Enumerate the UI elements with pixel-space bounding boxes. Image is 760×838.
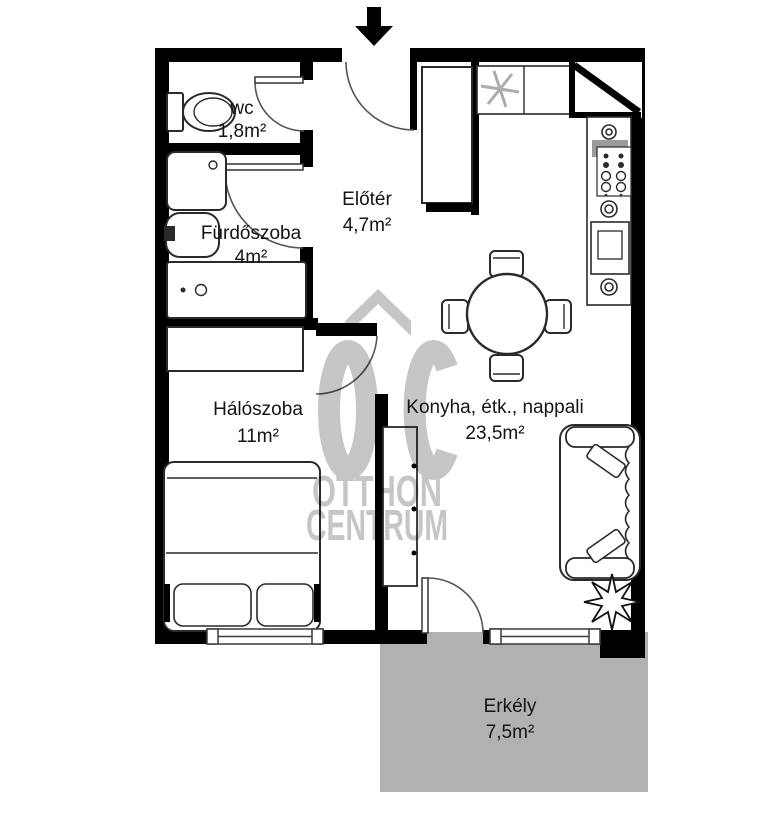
shaft-icon [569, 62, 642, 118]
wall-bottom-living-left [375, 630, 427, 644]
kitchen-top-counter [477, 66, 570, 114]
sofa-armrest [566, 558, 634, 578]
pillow [257, 584, 313, 626]
chair [490, 355, 523, 381]
living-window [490, 629, 600, 644]
room-area-bathroom: 4m² [235, 247, 268, 268]
sofa-armrest [566, 427, 634, 447]
table-top [467, 274, 547, 354]
washbasin-faucet [165, 227, 174, 240]
room-name-wc: wc [229, 98, 253, 119]
balcony-door-leaf [422, 578, 428, 633]
watermark-line2: CENTRUM [306, 501, 448, 550]
floor-plan-canvas: wc 1,8m² Fürdőszoba 4m² Előtér 4,7m² Hál… [0, 0, 760, 838]
room-name-hall: Előtér [342, 189, 392, 210]
room-name-living: Konyha, étk., nappali [406, 397, 583, 418]
room-area-hall: 4,7m² [343, 215, 392, 236]
shower-icon [167, 152, 226, 210]
room-name-balcony: Erkély [484, 696, 537, 717]
sofa-icon [560, 425, 640, 580]
kitchen-counter-icon [587, 117, 631, 305]
bedroom-window [207, 629, 323, 644]
plant-icon [584, 574, 640, 630]
floor-plan: wc 1,8m² Fürdőszoba 4m² Előtér 4,7m² Hál… [0, 0, 760, 838]
wall-bottom-corner [600, 630, 645, 658]
bedroom-wardrobe [167, 327, 303, 371]
chair [442, 300, 468, 333]
bath-door-leaf [225, 164, 303, 170]
hall-closet [422, 67, 472, 212]
wall-wc-bath [300, 130, 313, 167]
bathtub-icon [167, 262, 306, 318]
room-area-living: 23,5m² [465, 423, 524, 444]
chair [545, 300, 571, 333]
room-area-balcony: 7,5m² [486, 722, 535, 743]
pillow [174, 584, 251, 626]
wall-top-right [410, 48, 645, 62]
entrance-door-leaf [410, 62, 417, 130]
room-name-bathroom: Fürdőszoba [201, 223, 302, 244]
room-area-wc: 1,8m² [218, 121, 267, 142]
room-area-bedroom: 11m² [237, 426, 279, 447]
bed-icon [164, 462, 320, 631]
wc-door-leaf [255, 77, 303, 83]
wall-top-left [155, 48, 342, 62]
room-name-bedroom: Hálószoba [213, 399, 303, 420]
